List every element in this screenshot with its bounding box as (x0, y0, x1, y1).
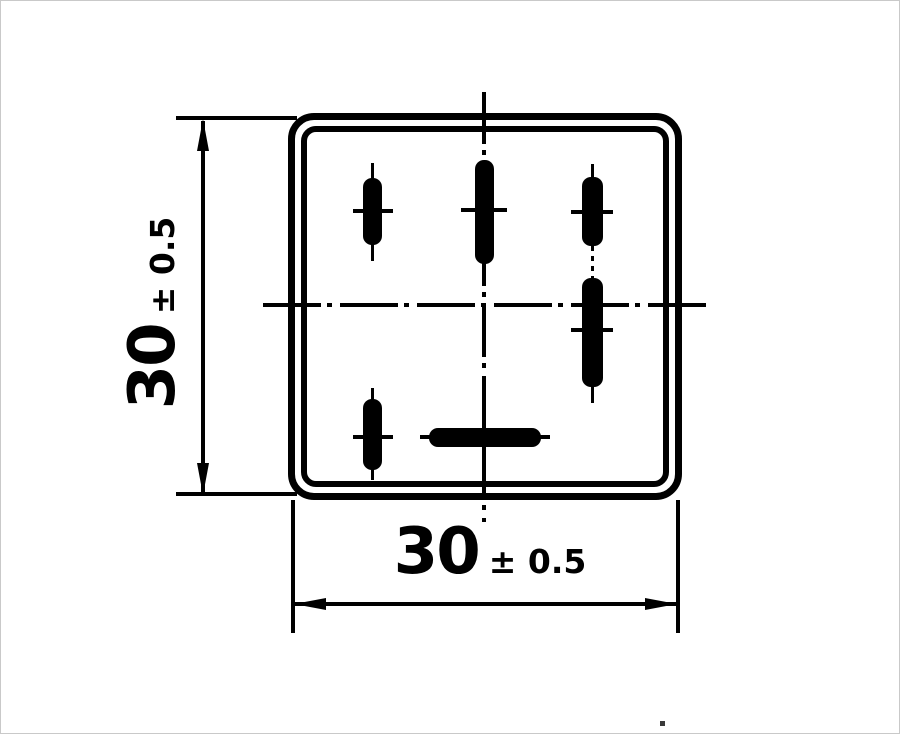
width-extension-line-right (676, 500, 680, 633)
terminal-slot-bottom-center (429, 428, 541, 447)
width-dimension-arrow-right-icon (645, 598, 677, 610)
width-dimension-arrow-left-icon (294, 598, 326, 610)
terminal-bottom-left-crosshair (353, 435, 393, 439)
width-dimension-label: 30 ± 0.5 (390, 520, 590, 590)
technical-drawing-canvas: 30 ± 0.5 30 ± 0.5 (0, 0, 900, 734)
width-dimension-line (294, 602, 677, 606)
terminal-top-right-centerline-upper (591, 164, 594, 178)
height-extension-line-top (176, 116, 297, 120)
height-dimension-line (201, 121, 205, 494)
terminal-right-connecting-centerline (591, 246, 594, 279)
height-dimension-tolerance: ± 0.5 (146, 217, 179, 315)
scan-noise-dot (660, 721, 665, 726)
width-extension-line-left (291, 500, 295, 633)
width-dimension-value: 30 (394, 520, 479, 584)
terminal-top-left-crosshair (353, 209, 393, 213)
vertical-centerline (482, 92, 486, 522)
height-dimension-arrow-up-icon (197, 119, 209, 151)
terminal-top-right-crosshair (571, 210, 613, 214)
height-dimension-value: 30 (121, 324, 185, 409)
width-dimension-tolerance: ± 0.5 (489, 545, 587, 578)
terminal-right-middle-crosshair (571, 328, 613, 332)
terminal-slot-top-center (475, 160, 494, 264)
height-extension-line-bottom (176, 492, 297, 496)
height-dimension-label: 30 ± 0.5 (121, 215, 191, 411)
terminal-bottom-center-tick-right (540, 435, 550, 439)
height-dimension-arrow-down-icon (197, 463, 209, 495)
terminal-slot-right-middle (582, 278, 603, 387)
terminal-right-middle-centerline-lower (591, 387, 594, 403)
terminal-top-center-crosshair (461, 208, 507, 212)
